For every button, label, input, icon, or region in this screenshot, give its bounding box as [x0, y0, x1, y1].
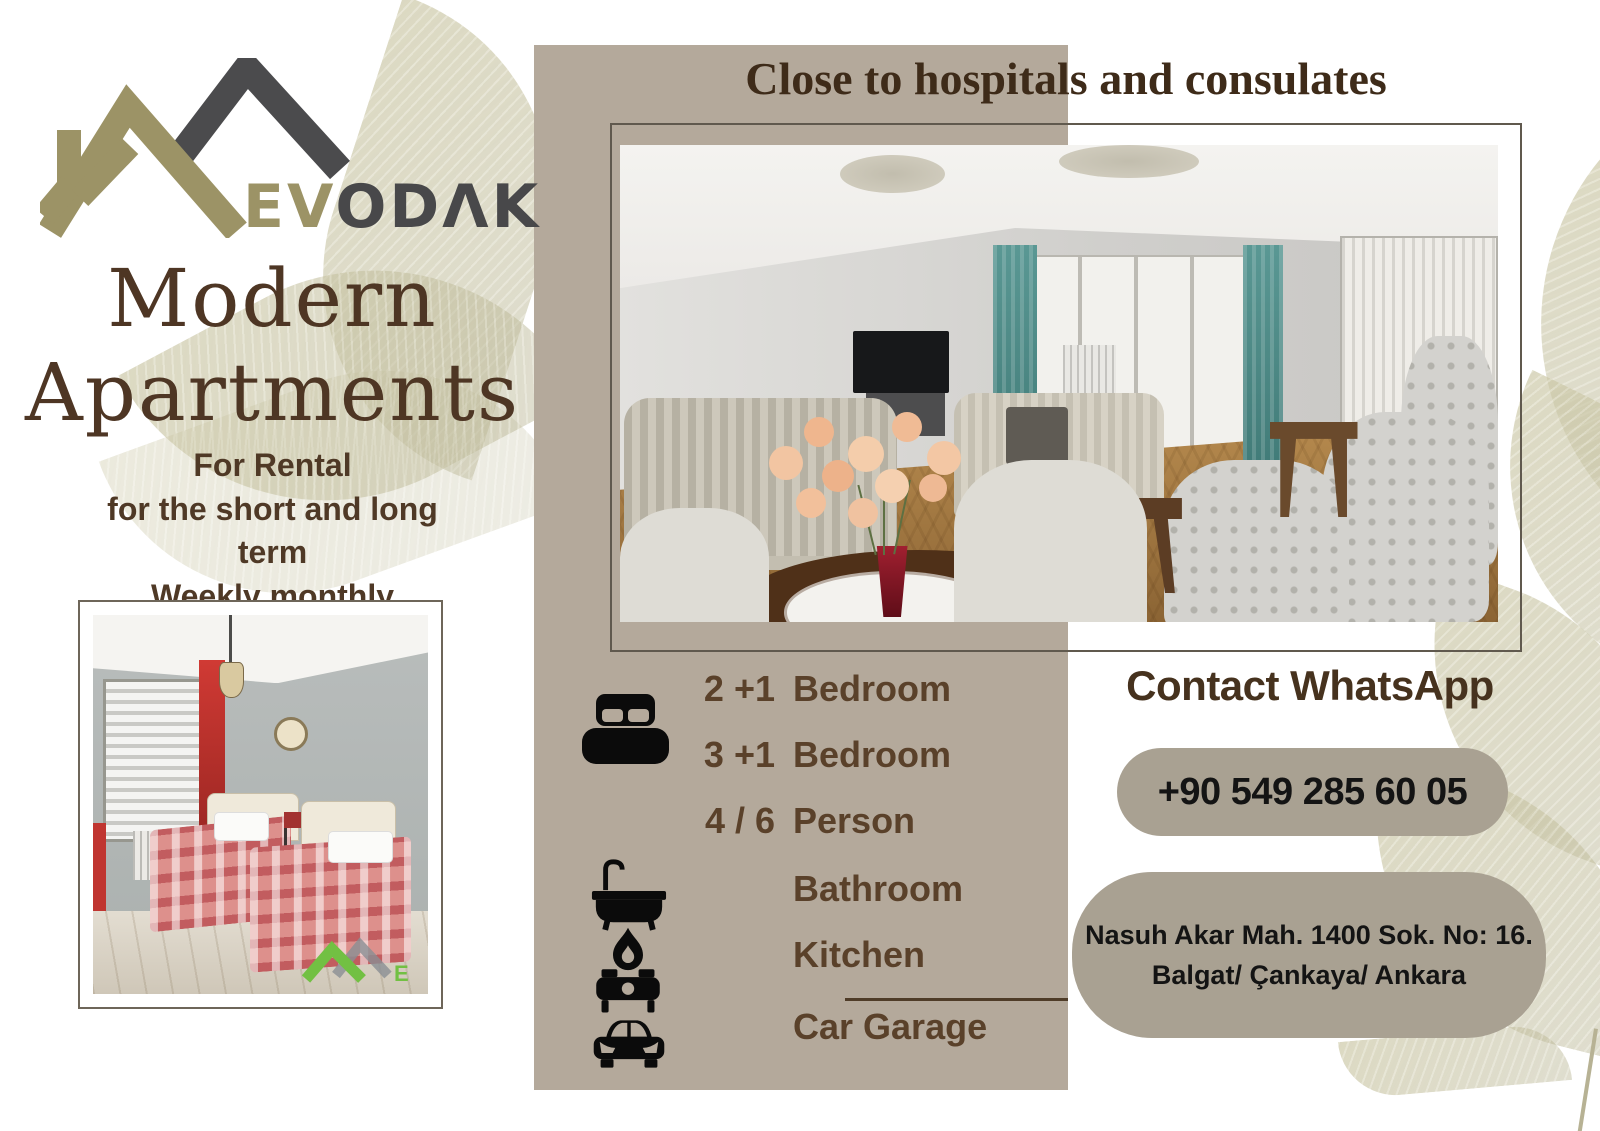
- pendant-lamp-shade: [219, 662, 244, 698]
- feature-row: 4 / 6 Person: [640, 800, 1070, 842]
- address-line2: Balgat/ Çankaya/ Ankara: [1152, 955, 1466, 996]
- address-line1: Nasuh Akar Mah. 1400 Sok. No: 16.: [1085, 915, 1533, 956]
- divider-line: [845, 998, 1068, 1001]
- chandelier: [840, 155, 945, 193]
- feature-row: Kitchen: [640, 934, 1070, 976]
- wing-chair: [1164, 460, 1348, 622]
- feature-qty: 3 +1: [640, 734, 775, 776]
- feature-label: Bedroom: [793, 734, 951, 776]
- feature-row: 2 +1 Bedroom: [640, 668, 1070, 710]
- feature-row: Bathroom: [640, 868, 1070, 910]
- headline: Close to hospitals and consulates: [610, 52, 1522, 105]
- dining-chair: [954, 460, 1147, 622]
- feature-qty: 4 / 6: [640, 800, 775, 842]
- tagline-line: For Rental: [0, 444, 545, 488]
- watermark-letter: E: [394, 961, 409, 983]
- window-blinds: [103, 679, 204, 842]
- feature-label: Kitchen: [793, 934, 925, 976]
- television: [853, 331, 950, 393]
- living-room-photo: [620, 145, 1498, 622]
- poster-title-line2: Apartments: [0, 346, 545, 439]
- tagline-line: for the short and long: [0, 488, 545, 532]
- feature-label: Person: [793, 800, 915, 842]
- feature-label: Bedroom: [793, 668, 951, 710]
- red-curtain: [93, 823, 106, 910]
- tagline-line: term: [0, 531, 545, 575]
- flower: [822, 460, 854, 492]
- feature-row: 3 +1 Bedroom: [640, 734, 1070, 776]
- flower: [796, 488, 826, 518]
- dining-chair: [620, 508, 769, 622]
- pendant-lamp: [229, 615, 232, 664]
- brand-name: EVODΛK: [243, 172, 541, 242]
- contact-heading: Contact WhatsApp: [1090, 662, 1530, 710]
- bedroom-photo: E: [93, 615, 428, 994]
- whatsapp-phone-button[interactable]: +90 549 285 60 05: [1117, 748, 1508, 836]
- flower: [848, 436, 884, 472]
- flower: [927, 441, 961, 475]
- bedroom-photo-frame: E: [78, 600, 443, 1009]
- rental-tagline: For Rental for the short and long term W…: [0, 444, 545, 618]
- living-room-photo-frame: [610, 123, 1522, 652]
- photo-watermark-logo: E: [298, 923, 418, 983]
- flower: [769, 446, 803, 480]
- flower: [875, 469, 909, 503]
- wall-clock: [274, 717, 308, 751]
- feature-qty: [640, 868, 775, 910]
- brand-name-odak: ODΛK: [335, 172, 541, 242]
- feature-row: Car Garage: [640, 1006, 1070, 1048]
- bed-pillow: [328, 831, 394, 863]
- feature-label: Car Garage: [793, 1006, 987, 1048]
- address-box: Nasuh Akar Mah. 1400 Sok. No: 16. Balgat…: [1072, 872, 1546, 1038]
- feature-qty: [640, 934, 775, 976]
- flower: [892, 412, 922, 442]
- rental-flyer: EVODΛK Modern Apartments For Rental for …: [0, 0, 1600, 1131]
- feature-label: Bathroom: [793, 868, 963, 910]
- phone-number: +90 549 285 60 05: [1158, 771, 1468, 814]
- ceiling: [93, 615, 428, 683]
- feature-qty: 2 +1: [640, 668, 775, 710]
- bed-pillow: [214, 812, 270, 841]
- poster-title-line1: Modern: [0, 252, 545, 345]
- sofa-pillow: [1006, 407, 1067, 464]
- feature-qty: [640, 1006, 775, 1048]
- flower: [919, 474, 947, 502]
- brand-name-ev: EV: [243, 172, 335, 242]
